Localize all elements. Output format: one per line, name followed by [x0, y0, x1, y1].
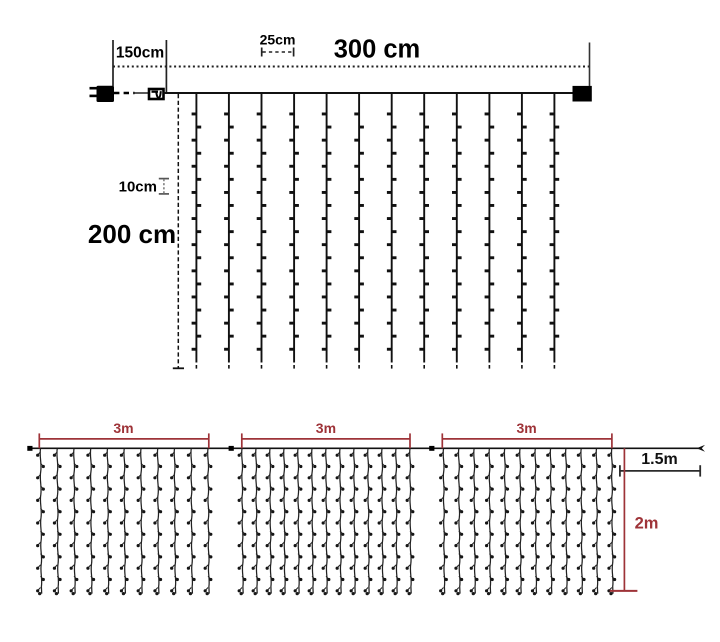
svg-text:300 cm: 300 cm — [334, 36, 421, 64]
svg-text:150cm: 150cm — [116, 45, 164, 62]
svg-text:2m: 2m — [635, 515, 659, 533]
svg-text:3m: 3m — [516, 420, 536, 436]
svg-text:200 cm: 200 cm — [88, 219, 176, 249]
svg-text:25cm: 25cm — [260, 32, 296, 48]
svg-text:3m: 3m — [316, 420, 336, 436]
svg-text:1.5m: 1.5m — [641, 451, 677, 468]
svg-text:3m: 3m — [113, 420, 133, 436]
svg-text:10cm: 10cm — [119, 179, 157, 196]
